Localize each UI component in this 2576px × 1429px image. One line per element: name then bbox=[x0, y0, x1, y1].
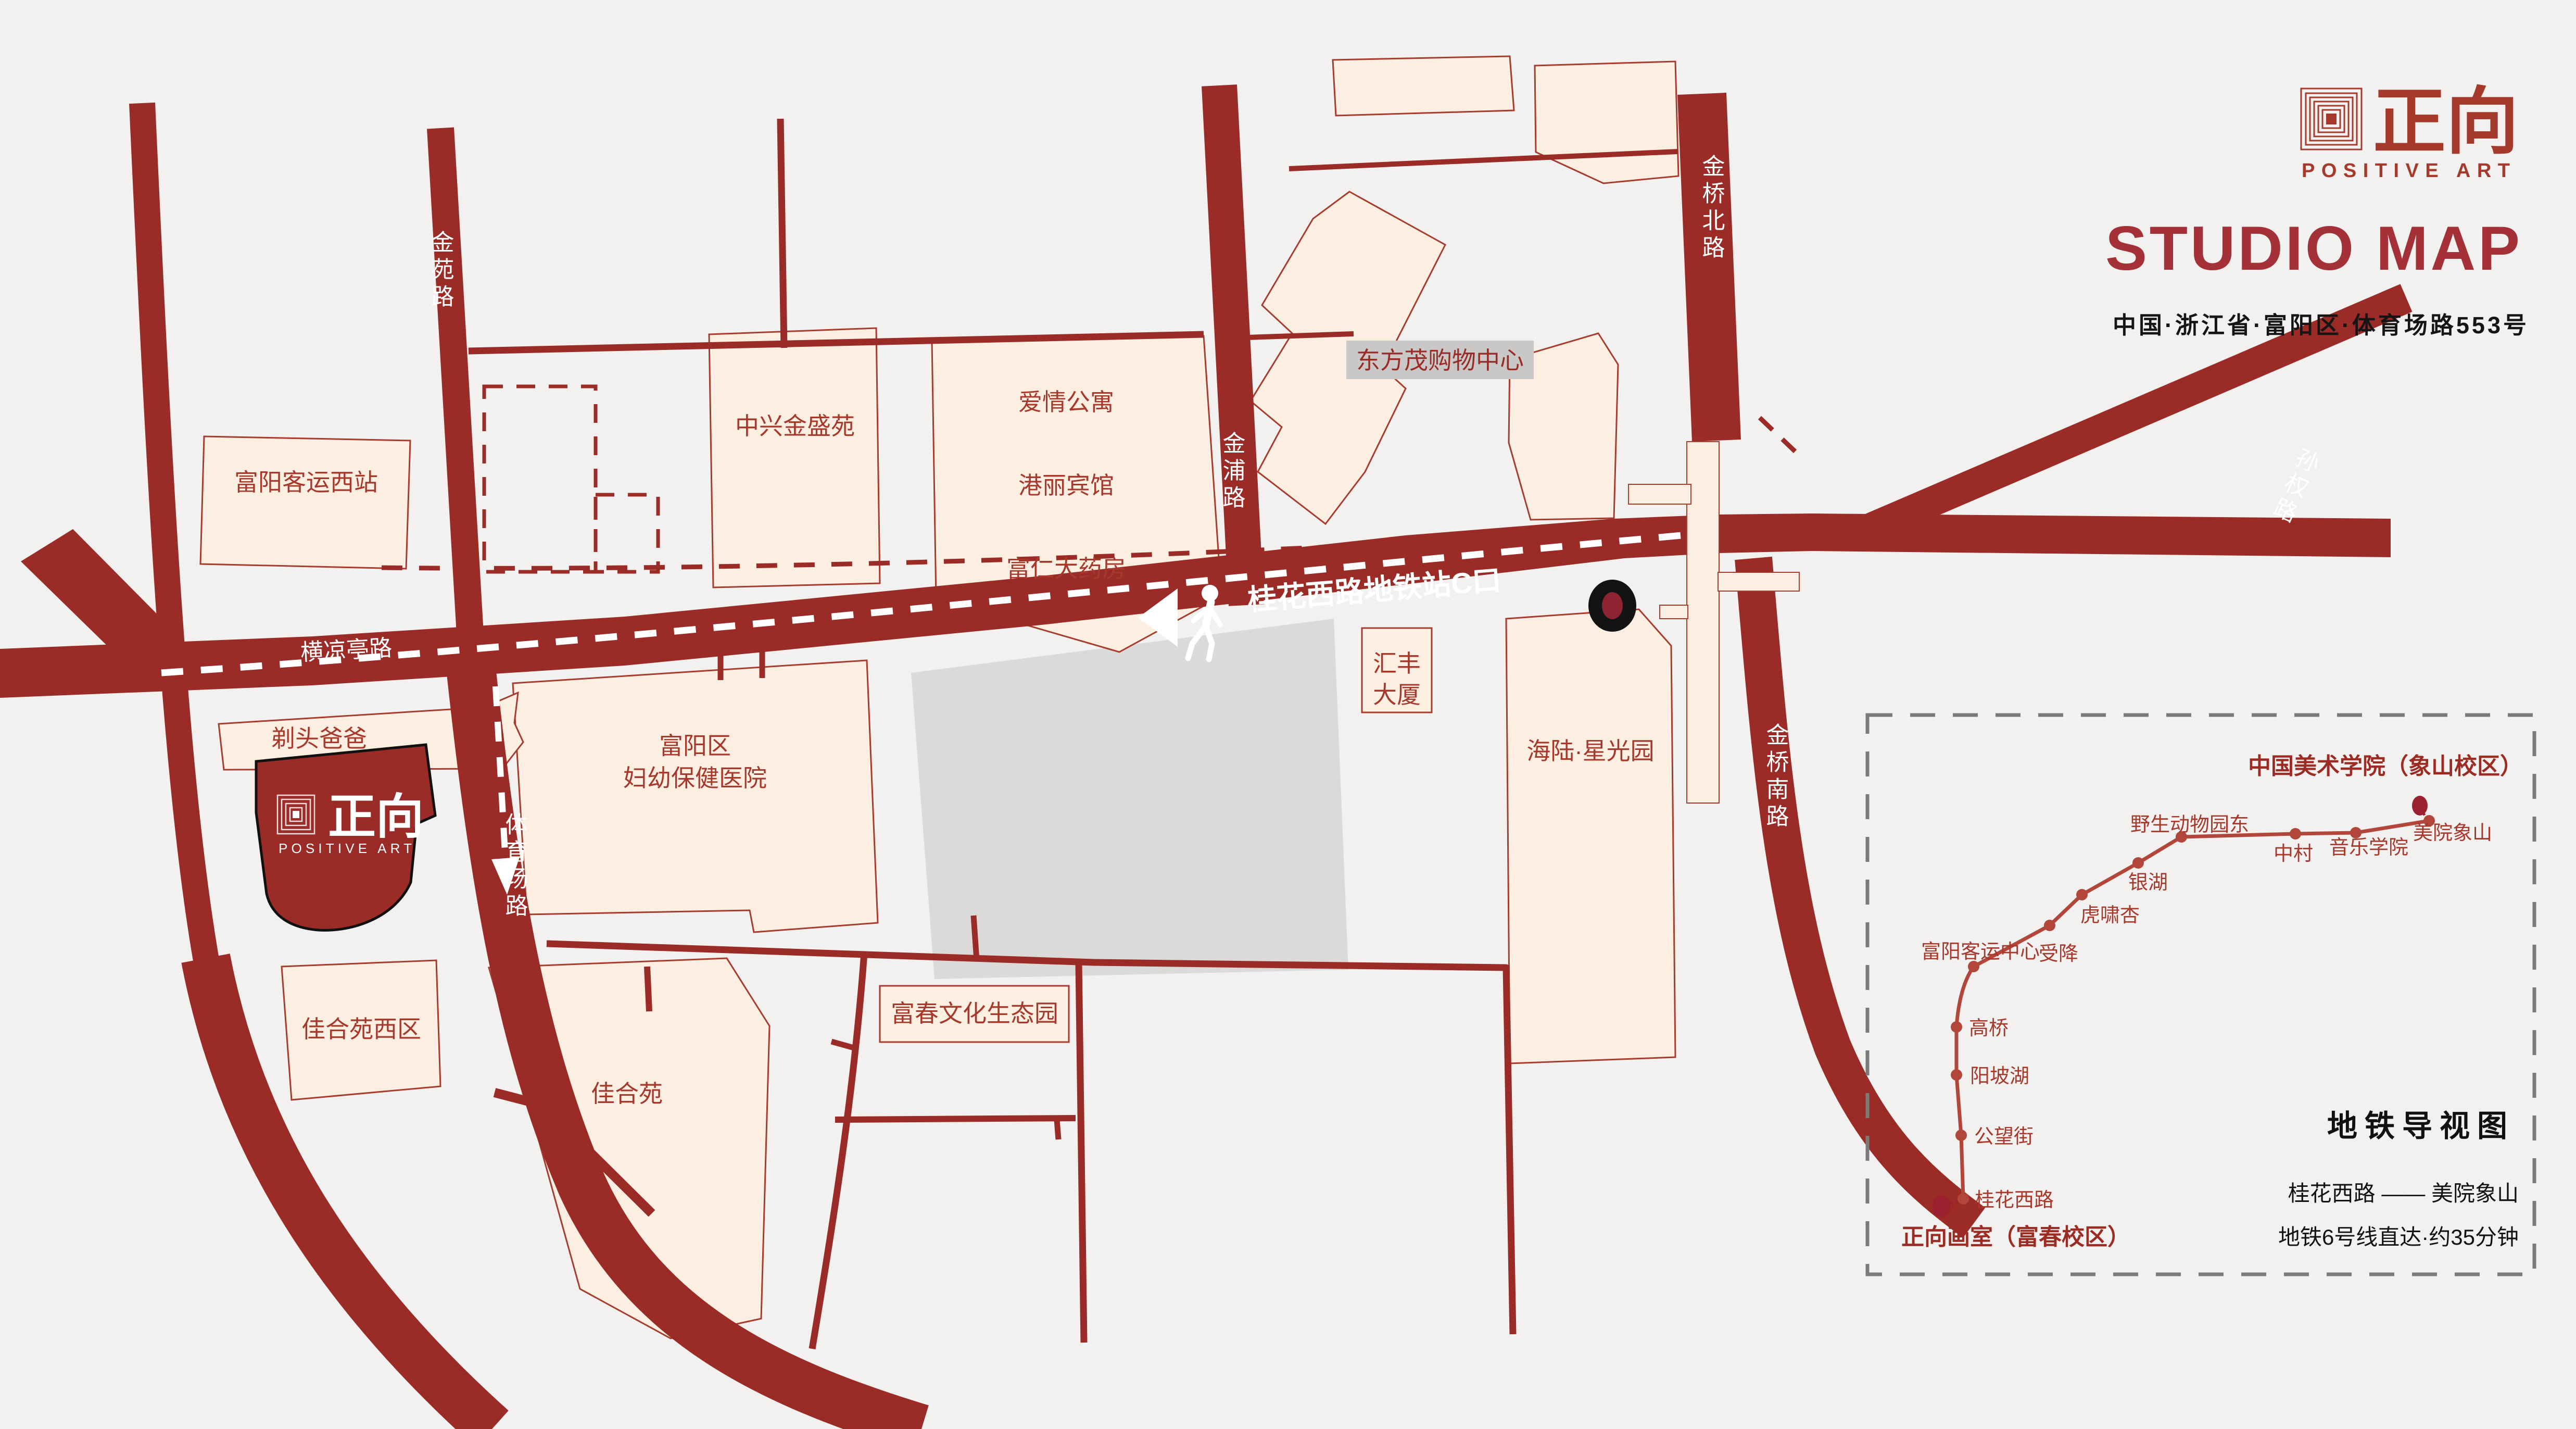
station-label: 阳坡湖 bbox=[1970, 1066, 2029, 1087]
station-dot-gongwangjie bbox=[1955, 1130, 1967, 1141]
station-dot-shoujiang bbox=[2044, 920, 2055, 931]
thin-road-north-2 bbox=[780, 119, 784, 348]
station-label: 富阳客运中心 bbox=[1921, 941, 2040, 963]
station-label: 高桥 bbox=[1969, 1018, 2009, 1039]
label-zhongxing: 中兴金盛苑 bbox=[735, 412, 855, 440]
terminal-label-academy: 中国美术学院（象山校区） bbox=[2248, 754, 2523, 779]
station-label: 桂花西路 bbox=[1975, 1189, 2054, 1211]
label-huifeng-line2: 大厦 bbox=[1373, 681, 1421, 708]
station-label: 美院象山 bbox=[2413, 822, 2492, 844]
label-huifeng-line1: 汇丰 bbox=[1373, 650, 1421, 677]
building-hospital bbox=[513, 660, 878, 932]
terminal-label-studio: 正向画室（富春校区） bbox=[1901, 1224, 2130, 1250]
station-strip-arm-upper bbox=[1628, 484, 1691, 504]
building-zhongxing bbox=[709, 328, 880, 587]
label-jiaheyuan-west: 佳合苑西区 bbox=[301, 1016, 421, 1043]
metro-exit-c-marker-center bbox=[1602, 592, 1623, 619]
label-hospital-line2: 妇幼保健医院 bbox=[623, 764, 767, 792]
label-jiaheyuan: 佳合苑 bbox=[591, 1080, 663, 1107]
station-label: 受降 bbox=[2039, 943, 2078, 965]
label-gangli: 港丽宾馆 bbox=[1018, 472, 1114, 499]
road-label-jinqiao-north: 金桥北路 bbox=[1699, 154, 1725, 262]
station-dot-yangpohu bbox=[1951, 1069, 1962, 1081]
station-strip-arm-right bbox=[1718, 572, 1799, 591]
brand-logo-cn: 正向 bbox=[2373, 81, 2519, 162]
metro-duration: 地铁6号线直达·约35分钟 bbox=[2278, 1225, 2519, 1249]
road-jinqiao-north bbox=[1702, 94, 1716, 441]
station-dot-zhongcun bbox=[2290, 828, 2301, 839]
studio-logo-en: POSITIVE ART bbox=[279, 841, 416, 856]
station-label: 野生动物园东 bbox=[2130, 814, 2249, 836]
road-label-jinpu: 金浦路 bbox=[1219, 431, 1245, 512]
label-aiqing: 爱情公寓 bbox=[1018, 388, 1114, 416]
building-mall-north bbox=[1333, 56, 1514, 116]
station-dot-gaoqiao bbox=[1951, 1021, 1962, 1033]
thin-road-grayblock-stub bbox=[974, 916, 977, 960]
metro-diagram-title: 地铁导视图 bbox=[2327, 1109, 2515, 1143]
station-label: 虎啸杏 bbox=[2080, 905, 2140, 926]
station-label: 公望街 bbox=[1974, 1126, 2034, 1148]
terminal-dot-studio bbox=[1933, 1196, 1950, 1218]
label-hospital-line1: 富阳区 bbox=[659, 732, 731, 759]
brand-logo-en: POSITIVE ART bbox=[2302, 160, 2516, 182]
label-dongfangmao: 东方茂购物中心 bbox=[1356, 347, 1524, 374]
station-label: 音乐学院 bbox=[2329, 837, 2408, 859]
station-dot-guihuaxilu bbox=[1958, 1193, 1969, 1205]
page-title: STUDIO MAP bbox=[2105, 214, 2521, 283]
studio-logo-cn: 正向 bbox=[328, 791, 424, 844]
metro-route-endpoints: 桂花西路 —— 美院象山 bbox=[2288, 1181, 2519, 1206]
brand-logo-icon bbox=[2301, 89, 2362, 149]
studio-map-poster: 正向 POSITIVE ART 金苑路 金浦路 金桥北路 金桥南路 体育场路 孙… bbox=[0, 0, 2576, 1429]
road-label-hengliangting: 横凉亭路 bbox=[300, 635, 393, 666]
station-label: 中村 bbox=[2274, 843, 2313, 865]
station-dot-huxiaoxing bbox=[2076, 889, 2088, 900]
label-fuyang-west-bus-station: 富阳客运西站 bbox=[234, 469, 378, 496]
station-strip-arm-lower bbox=[1660, 605, 1688, 619]
road-label-jinyuan: 金苑路 bbox=[428, 230, 454, 311]
station-dot-yinhu bbox=[2132, 857, 2144, 869]
label-furen: 富仁大药房 bbox=[1006, 555, 1126, 582]
station-label: 银湖 bbox=[2128, 872, 2168, 894]
station-strip-vertical bbox=[1687, 442, 1719, 803]
label-titou-baba: 剃头爸爸 bbox=[271, 725, 367, 752]
building-fuyang-west-bus-station bbox=[200, 436, 410, 569]
studio-address: 中国·浙江省·富阳区·体育场路553号 bbox=[2113, 312, 2529, 339]
label-fuchun-park: 富春文化生态园 bbox=[891, 1000, 1058, 1027]
thin-road-north-stub bbox=[1247, 334, 1354, 337]
building-hailu bbox=[1506, 609, 1675, 1063]
thin-road-south-cross bbox=[835, 1118, 1076, 1120]
terminal-dot-academy bbox=[2412, 796, 2428, 816]
thin-road-south-stub bbox=[1057, 1120, 1058, 1139]
label-hailu: 海陆·星光园 bbox=[1526, 737, 1654, 764]
thin-road-jiaheyuan-stub bbox=[647, 967, 649, 1011]
road-label-jinqiao-south: 金桥南路 bbox=[1763, 723, 1789, 831]
road-label-tiyuchang: 体育场路 bbox=[502, 812, 528, 921]
